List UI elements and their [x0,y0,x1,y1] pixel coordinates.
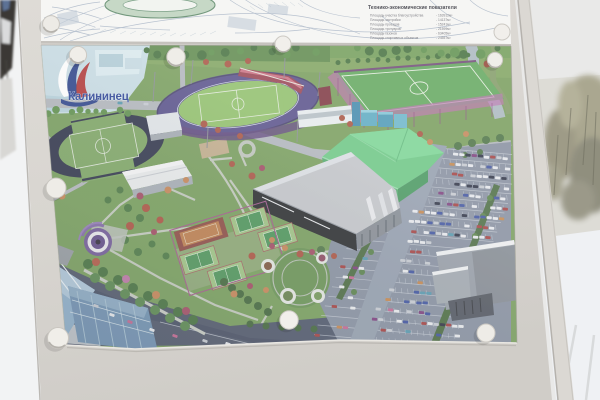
svg-text:- 24557м²: - 24557м² [436,36,451,40]
svg-text:Технико-экономические показате: Технико-экономические показатели [368,5,457,11]
svg-text:- 21599м²: - 21599м² [436,27,451,31]
svg-text:Площадь газонов: Площадь газонов [370,32,397,36]
svg-text:Площадь участка благоустройств: Площадь участка благоустройства [370,14,423,18]
svg-text:Площадь спортивных объектов: Площадь спортивных объектов [370,36,418,40]
svg-text:- 63405м²: - 63405м² [436,32,451,36]
svg-text:Площадь тротуаров: Площадь тротуаров [370,27,401,31]
svg-text:- 163912м²: - 163912м² [436,14,453,18]
svg-text:- 14137м²: - 14137м² [436,18,451,22]
svg-text:Калининец: Калининец [68,91,129,103]
svg-text:Площадь проездов: Площадь проездов [370,23,400,27]
svg-text:- 15241м²: - 15241м² [436,23,451,27]
svg-text:Площадь застройки: Площадь застройки [370,18,401,22]
